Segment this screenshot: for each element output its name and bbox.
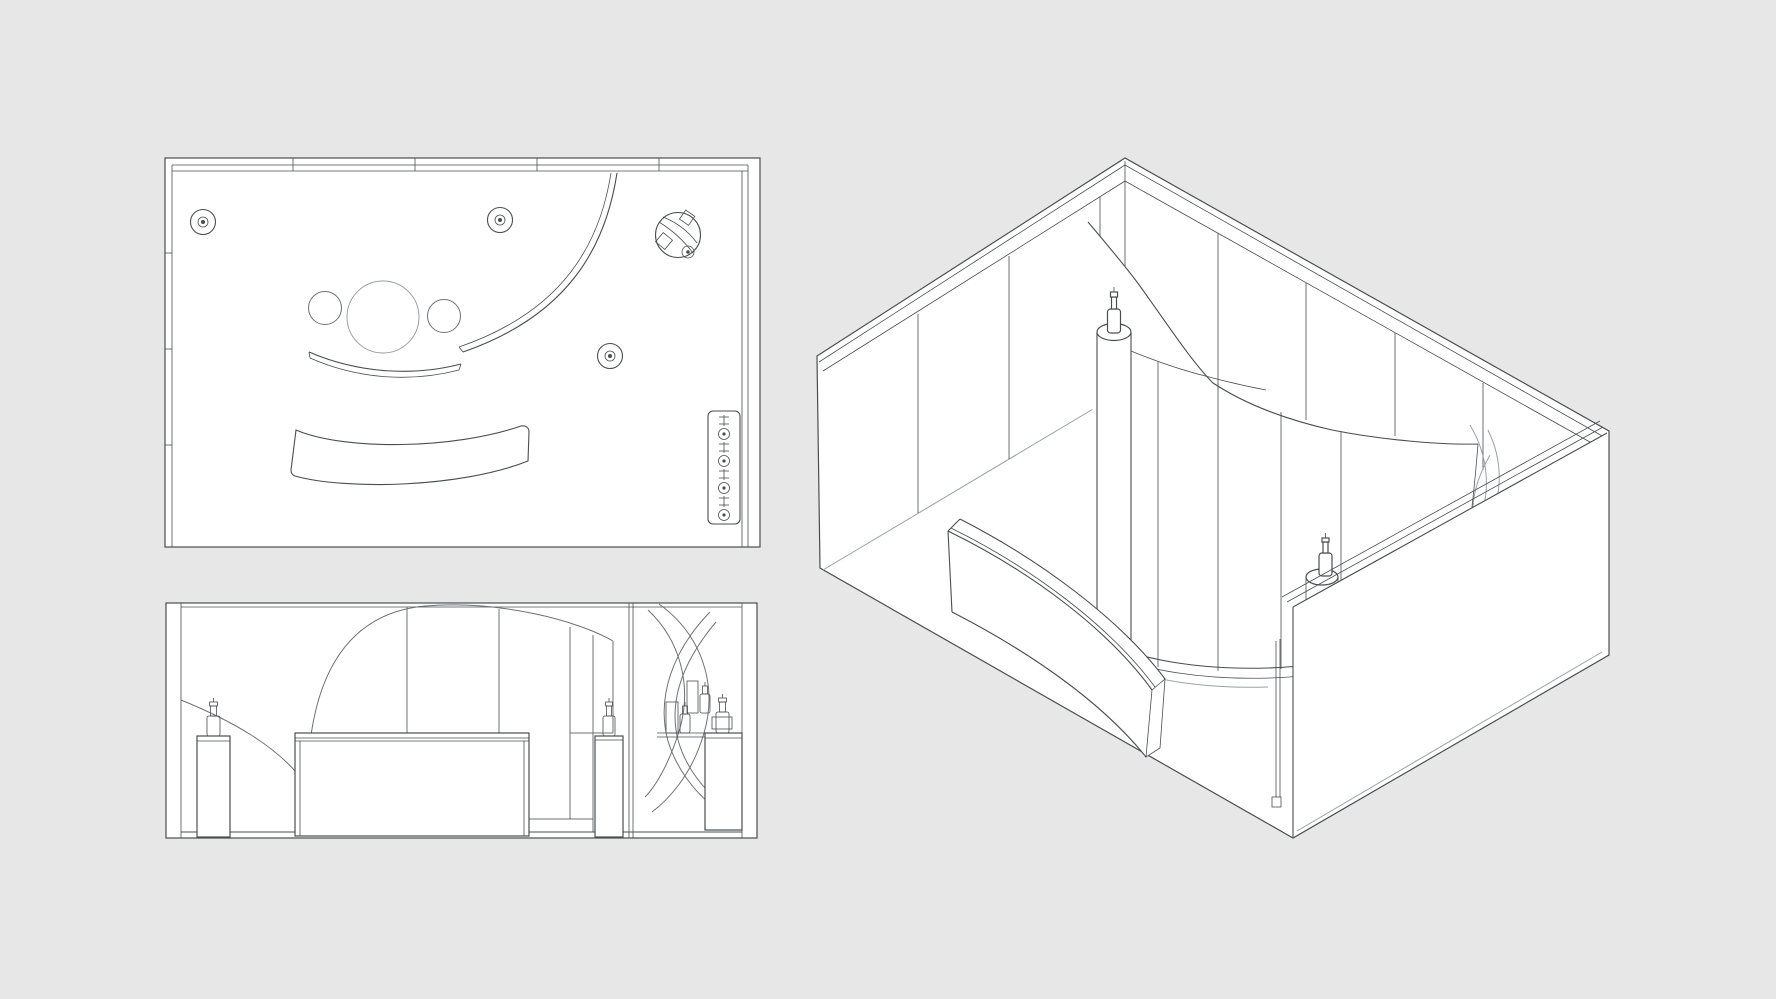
isometric-view [817, 158, 1609, 838]
drawing-sheet [0, 0, 1776, 999]
floor-plan-view [165, 158, 760, 547]
front-elevation-view [166, 603, 757, 838]
plan-outer-wall [165, 158, 760, 547]
elevation-reception-desk [295, 733, 529, 836]
technical-drawing-canvas [0, 0, 1776, 999]
iso-display-column [1097, 287, 1131, 655]
